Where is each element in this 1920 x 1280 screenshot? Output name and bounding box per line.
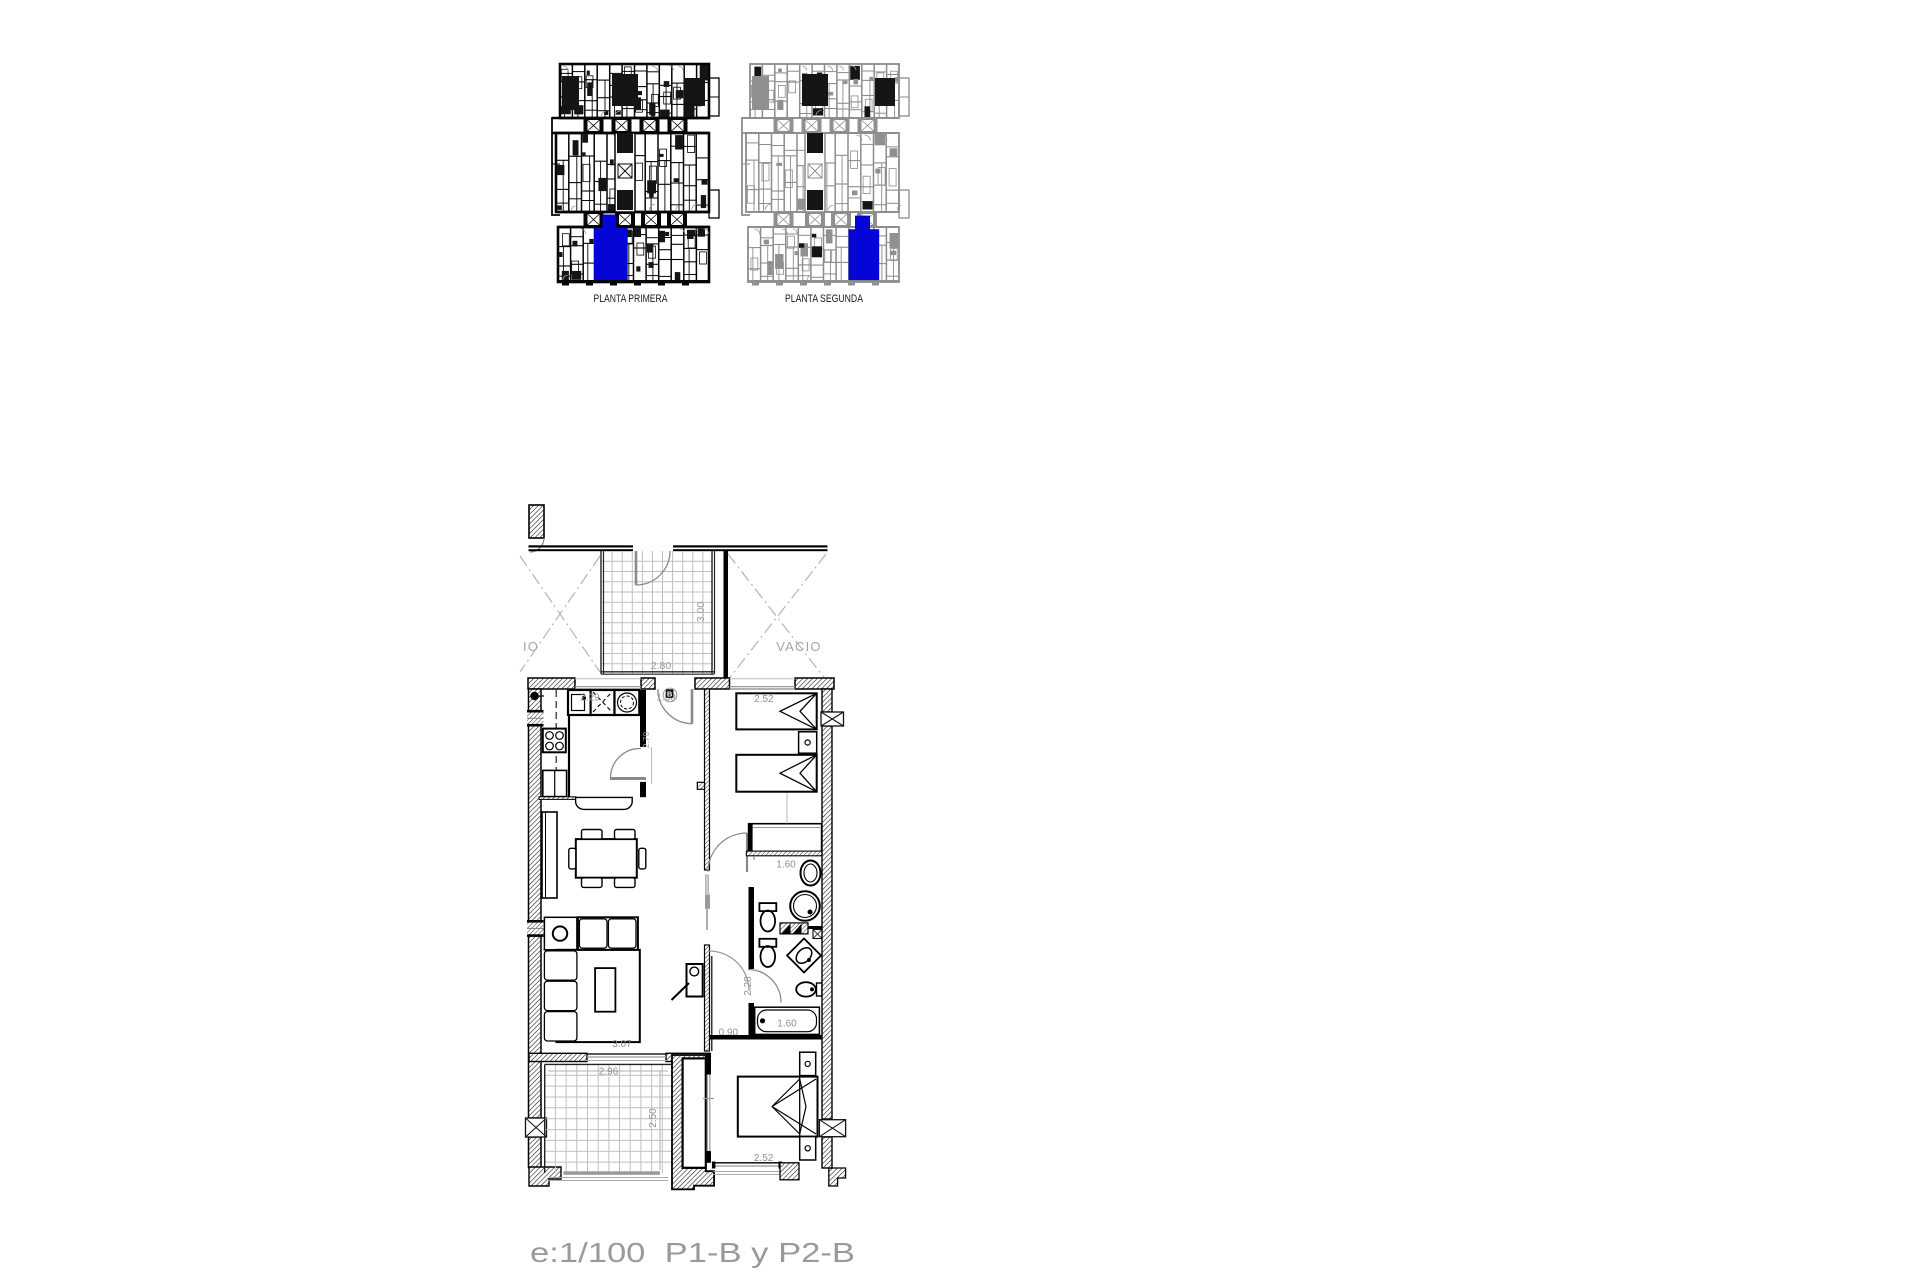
svg-text:3.00: 3.00 [695,602,707,623]
svg-text:3.07: 3.07 [612,1039,632,1050]
svg-text:e:1/100 P1-B y P2-B: e:1/100 P1-B y P2-B [530,1237,855,1268]
svg-text:B: B [667,690,673,699]
svg-text:PLANTA SEGUNDA: PLANTA SEGUNDA [785,293,864,305]
svg-text:1.60: 1.60 [777,1019,797,1030]
svg-text:2.80: 2.80 [651,660,672,672]
svg-text:2.28: 2.28 [743,976,754,996]
svg-text:2.52: 2.52 [754,694,774,705]
svg-text:2.96: 2.96 [599,1067,619,1078]
svg-text:VACIO: VACIO [776,639,822,654]
svg-text:2.50: 2.50 [648,1108,659,1128]
svg-text:1.60: 1.60 [776,860,796,871]
svg-text:2.29: 2.29 [580,693,600,704]
svg-text:IO: IO [523,639,539,654]
svg-text:PLANTA PRIMERA: PLANTA PRIMERA [594,293,669,305]
svg-text:2.70: 2.70 [641,731,651,748]
